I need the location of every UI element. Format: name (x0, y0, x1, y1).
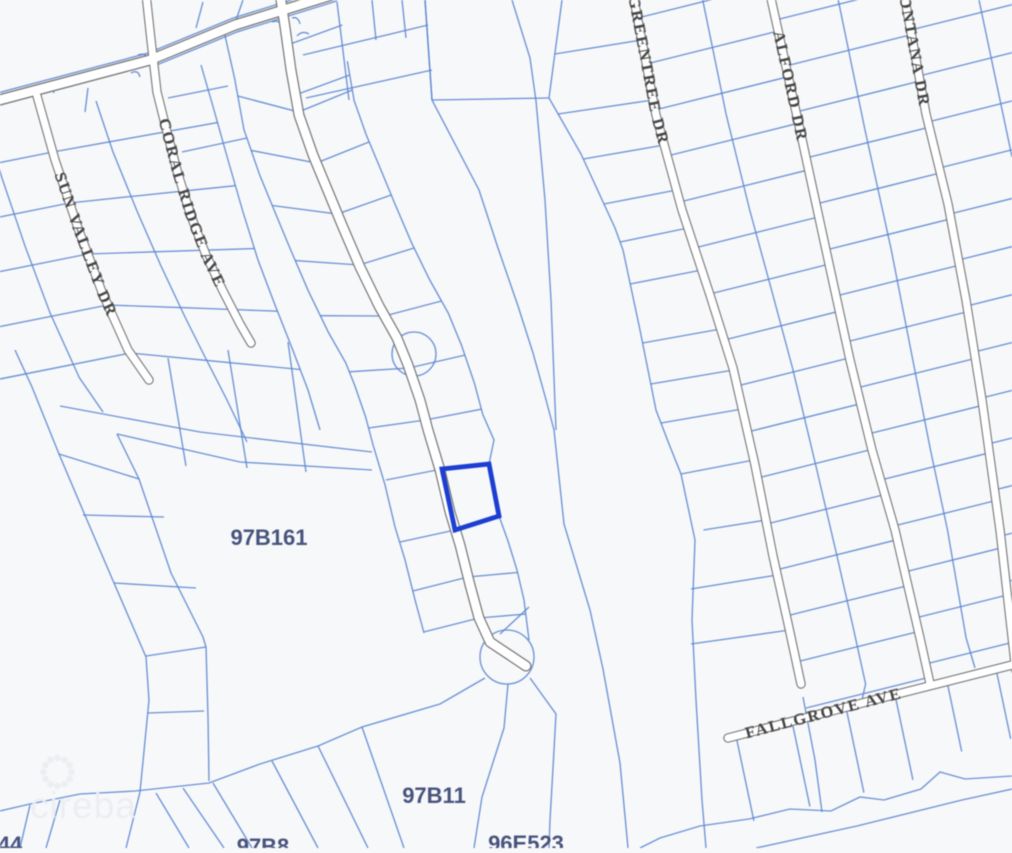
svg-text:97B161: 97B161 (230, 525, 307, 550)
svg-text:97B8: 97B8 (237, 834, 290, 848)
svg-text:96E523: 96E523 (488, 831, 564, 848)
svg-text:44: 44 (0, 832, 23, 848)
svg-text:cireba: cireba (30, 785, 137, 826)
svg-text:97B11: 97B11 (402, 783, 466, 808)
